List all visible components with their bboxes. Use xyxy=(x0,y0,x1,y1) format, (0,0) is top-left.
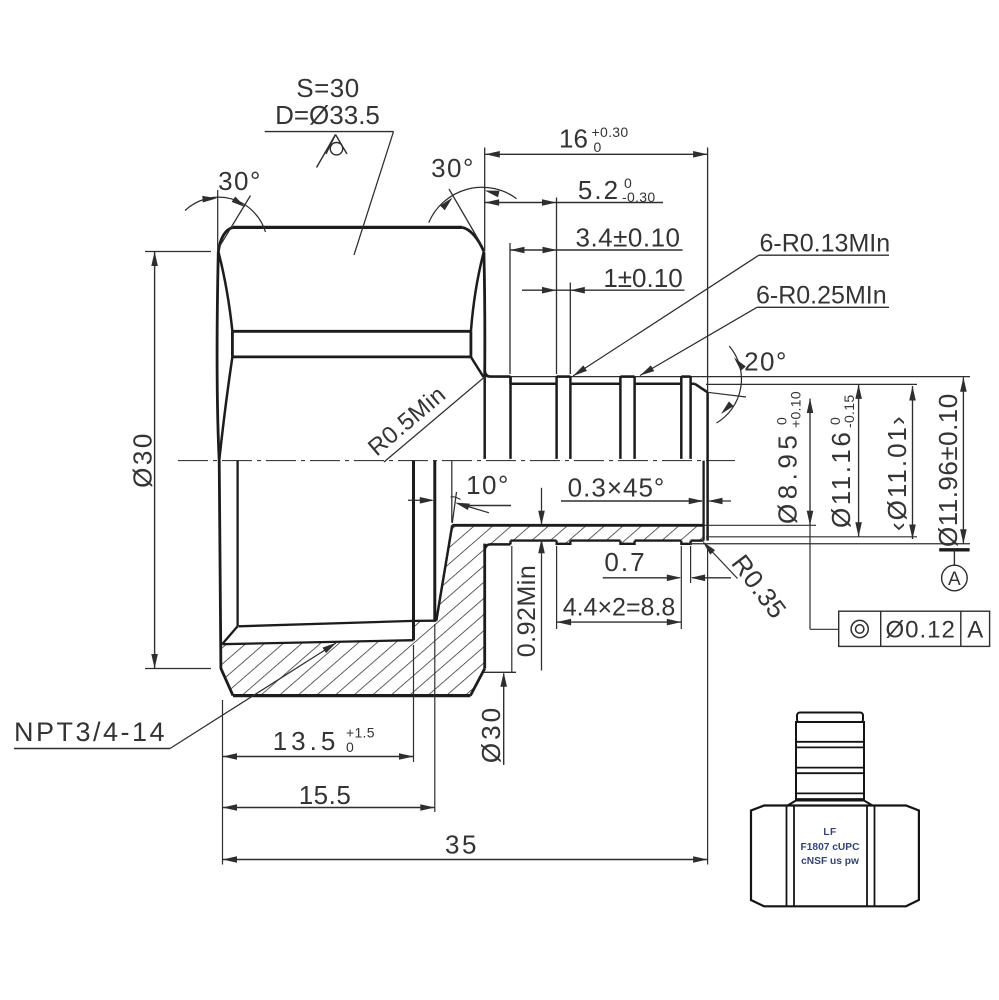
svg-text:D=Ø33.5: D=Ø33.5 xyxy=(275,100,380,130)
svg-text:Ø11.96±0.10: Ø11.96±0.10 xyxy=(933,393,963,547)
svg-text:20°: 20° xyxy=(744,347,788,377)
svg-text:+0.10: +0.10 xyxy=(788,391,804,428)
svg-text:30°: 30° xyxy=(431,153,475,183)
svg-text:15.5: 15.5 xyxy=(299,780,352,810)
svg-text:-0.30: -0.30 xyxy=(622,189,655,205)
svg-text:13.5: 13.5 xyxy=(273,726,340,756)
svg-text:NPT3/4-14: NPT3/4-14 xyxy=(14,717,167,747)
svg-text:‹Ø11.01›: ‹Ø11.01› xyxy=(882,414,912,531)
svg-text:1±0.10: 1±0.10 xyxy=(603,263,682,293)
svg-text:cNSF us pw: cNSF us pw xyxy=(801,856,859,867)
svg-text:0.3×45°: 0.3×45° xyxy=(568,473,666,503)
svg-text:A: A xyxy=(967,617,983,644)
svg-text:A: A xyxy=(948,569,961,590)
svg-text:3.4±0.10: 3.4±0.10 xyxy=(575,223,680,253)
svg-text:S=30: S=30 xyxy=(296,73,359,103)
svg-text:10°: 10° xyxy=(466,470,510,500)
svg-text:F1807 cUPC: F1807 cUPC xyxy=(801,842,861,853)
svg-text:6-R0.25MIn: 6-R0.25MIn xyxy=(756,282,887,310)
svg-text:5.2: 5.2 xyxy=(578,175,620,205)
svg-text:35: 35 xyxy=(445,830,479,860)
svg-text:16: 16 xyxy=(559,124,588,154)
svg-text:Ø30: Ø30 xyxy=(128,431,158,488)
svg-text:30°: 30° xyxy=(218,166,262,196)
svg-text:+0.30: +0.30 xyxy=(592,124,629,140)
svg-text:0: 0 xyxy=(346,739,354,755)
svg-text:0.92Min: 0.92Min xyxy=(513,565,541,657)
svg-text:0.7: 0.7 xyxy=(604,547,646,577)
svg-text:Ø8.95: Ø8.95 xyxy=(773,431,803,524)
svg-text:0: 0 xyxy=(593,139,601,155)
svg-text:4.4×2=8.8: 4.4×2=8.8 xyxy=(563,594,676,622)
svg-text:LF: LF xyxy=(823,827,836,838)
svg-text:Ø30: Ø30 xyxy=(476,705,506,763)
svg-text:Ø0.12: Ø0.12 xyxy=(886,617,956,644)
svg-text:Ø11.16: Ø11.16 xyxy=(826,430,856,528)
svg-text:-0.15: -0.15 xyxy=(841,395,857,428)
svg-text:6-R0.13MIn: 6-R0.13MIn xyxy=(760,230,891,258)
